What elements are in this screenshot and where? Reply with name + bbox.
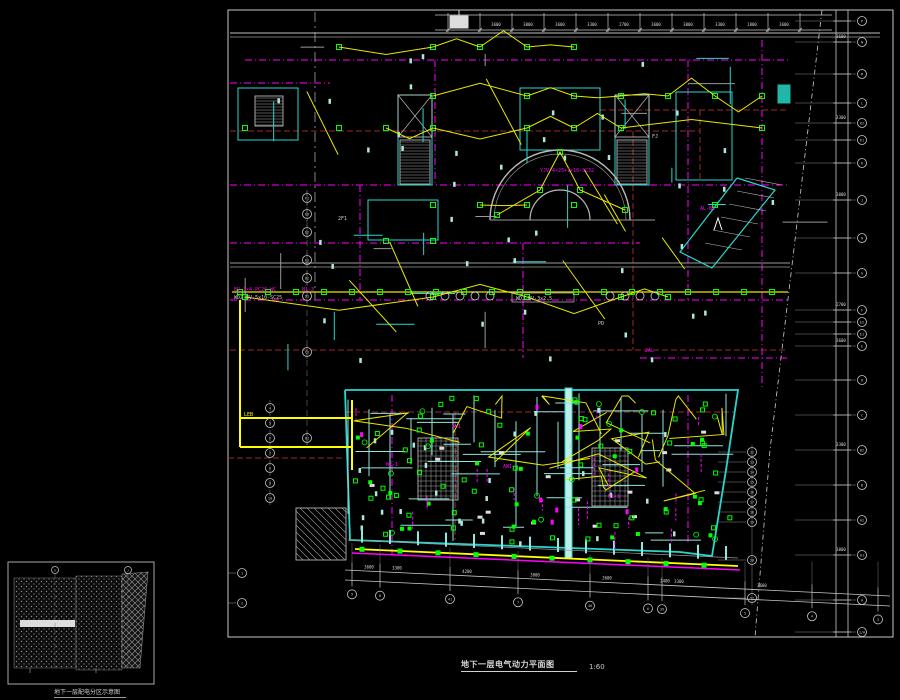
svg-text:E1: E1 — [860, 332, 864, 336]
svg-text:BV-3×4-PC20-WC: BV-3×4-PC20-WC — [234, 287, 276, 293]
grid-bubble: P — [858, 17, 867, 26]
svg-text:A2: A2 — [860, 518, 864, 522]
grid-bubble: E1 — [858, 330, 867, 339]
svg-text:F1: F1 — [305, 196, 309, 200]
svg-text:K: K — [861, 161, 864, 165]
grid-bubble: B — [858, 481, 867, 490]
grid-bubble: H — [858, 234, 867, 243]
svg-text:3300: 3300 — [392, 566, 402, 571]
grid-bubble: 2 — [238, 599, 247, 608]
grid-bubble: K1 — [858, 136, 867, 145]
svg-text:3600: 3600 — [651, 22, 661, 27]
svg-text:P: P — [861, 19, 863, 23]
svg-text:WDZ-BV-3×2.5: WDZ-BV-3×2.5 — [516, 296, 552, 302]
svg-text:10: 10 — [268, 496, 272, 500]
grid-bubble: 1 — [238, 569, 247, 578]
grid-bubble: L — [858, 99, 867, 108]
grid-bubble: 5 — [741, 609, 750, 618]
svg-text:8: 8 — [379, 594, 381, 598]
svg-text:5: 5 — [744, 611, 746, 615]
svg-text:2700: 2700 — [619, 22, 629, 27]
svg-text:3300: 3300 — [459, 22, 469, 27]
svg-text:3000: 3000 — [523, 22, 533, 27]
key-plan-label: 地下一层配电分区示意图 — [54, 687, 126, 698]
svg-text:D2: D2 — [305, 276, 309, 280]
svg-text:A: A — [861, 598, 864, 602]
svg-text:AL1: AL1 — [452, 424, 461, 430]
svg-text:3000: 3000 — [683, 22, 693, 27]
svg-text:AW1: AW1 — [503, 464, 512, 470]
svg-text:N1-1: N1-1 — [608, 494, 620, 500]
grid-bubble: 40 — [586, 601, 595, 610]
grid-bubble: 39 — [658, 605, 667, 614]
grid-bubble: C — [858, 411, 867, 420]
svg-text:E: E — [861, 344, 863, 348]
svg-text:WDZ-BV-5×10-SC25: WDZ-BV-5×10-SC25 — [234, 295, 282, 301]
svg-text:N2-1: N2-1 — [386, 462, 398, 468]
svg-text:4200: 4200 — [462, 569, 472, 574]
fire-line-layer — [228, 110, 788, 540]
svg-text:N1-3: N1-3 — [302, 287, 314, 293]
svg-text:6: 6 — [269, 436, 271, 440]
drawing-scale: 1:60 — [589, 663, 605, 672]
svg-text:F: F — [861, 308, 863, 312]
svg-text:6: 6 — [647, 607, 649, 611]
grid-bubble: F — [858, 306, 867, 315]
grid-bubble: A — [858, 596, 867, 605]
svg-text:1800: 1800 — [747, 22, 757, 27]
svg-text:D: D — [54, 568, 56, 572]
svg-text:B: B — [861, 483, 863, 487]
svg-text:40: 40 — [588, 604, 592, 608]
grid-bubble: 9 — [348, 590, 357, 599]
svg-text:1/A: 1/A — [859, 630, 866, 634]
svg-text:7: 7 — [517, 601, 519, 605]
svg-text:C: C — [861, 413, 863, 417]
svg-text:3600: 3600 — [602, 576, 612, 581]
svg-text:K1: K1 — [860, 138, 864, 142]
grid-bubble: D — [858, 376, 867, 385]
grid-bubble: 8 — [376, 591, 385, 600]
grid-bubble: 41 — [446, 595, 455, 604]
svg-text:2F1: 2F1 — [338, 216, 347, 222]
svg-text:3: 3 — [877, 618, 879, 622]
svg-text:J: J — [861, 198, 863, 202]
grid-bubble: A1 — [858, 551, 867, 560]
svg-text:3600: 3600 — [779, 22, 789, 27]
svg-text:B2: B2 — [860, 448, 864, 452]
hatched-core — [617, 140, 647, 184]
annotation-layer: BV-3×4-PC20-WCWDZ-BV-5×10-SC25N1-3YJV-4×… — [234, 134, 715, 500]
svg-text:9: 9 — [351, 593, 353, 597]
svg-text:3600: 3600 — [364, 564, 374, 569]
svg-text:41: 41 — [448, 597, 452, 601]
grid-bubble: N — [858, 38, 867, 47]
svg-text:E2: E2 — [860, 320, 864, 324]
svg-text:1: 1 — [241, 571, 243, 575]
svg-text:LEB: LEB — [244, 412, 253, 418]
svg-text:3300: 3300 — [836, 442, 846, 447]
svg-text:3300: 3300 — [587, 22, 597, 27]
grid-bubble: A2 — [858, 516, 867, 525]
svg-text:2700: 2700 — [836, 302, 846, 307]
svg-text:A1: A1 — [860, 553, 864, 557]
svg-text:4: 4 — [811, 615, 813, 619]
svg-text:B1: B1 — [305, 436, 309, 440]
svg-text:3600: 3600 — [491, 22, 501, 27]
hatched-core — [400, 140, 430, 184]
circuit-layer — [232, 31, 788, 568]
svg-text:3300: 3300 — [674, 579, 684, 584]
drawing-title: 地下一层电气动力平面图 — [461, 659, 577, 672]
plan-drawing[interactable]: 3300360030003600330027003600300033001800… — [0, 0, 900, 700]
grid-bubble: 7 — [514, 598, 523, 607]
svg-text:G: G — [861, 271, 863, 275]
svg-text:3000: 3000 — [836, 547, 846, 552]
svg-text:2AL: 2AL — [645, 348, 654, 354]
svg-text:AL-B1: AL-B1 — [700, 206, 715, 212]
cad-canvas[interactable]: 3300360030003600330027003600300033001800… — [0, 0, 900, 700]
svg-text:L: L — [861, 101, 863, 105]
hatched-core — [296, 508, 346, 560]
grid-bubble: K2 — [858, 119, 867, 128]
svg-text:N: N — [861, 40, 863, 44]
grid-bubble: 6 — [644, 604, 653, 613]
svg-text:D: D — [861, 378, 863, 382]
svg-text:3300: 3300 — [836, 115, 846, 120]
grid-bubble: B2 — [858, 446, 867, 455]
svg-text:8: 8 — [269, 466, 271, 470]
key-plan-inset: DJ — [8, 562, 154, 684]
svg-text:2: 2 — [241, 601, 243, 605]
svg-text:3000: 3000 — [836, 192, 846, 197]
svg-text:K2: K2 — [860, 121, 864, 125]
svg-text:FJ: FJ — [652, 134, 658, 140]
svg-text:39: 39 — [660, 608, 664, 612]
svg-text:YJV-4×25+1×16-SC32: YJV-4×25+1×16-SC32 — [540, 168, 594, 174]
svg-text:PD: PD — [598, 321, 604, 327]
grid-bubble: G — [858, 269, 867, 278]
grid-bubble: K — [858, 159, 867, 168]
svg-text:M: M — [861, 72, 863, 76]
svg-text:J: J — [127, 568, 129, 572]
grid-bubble: E2 — [858, 318, 867, 327]
grid-bubble: E — [858, 342, 867, 351]
grid-bubble: M — [858, 70, 867, 79]
svg-text:3300: 3300 — [715, 22, 725, 27]
svg-text:3000: 3000 — [530, 572, 540, 577]
svg-text:4: 4 — [269, 406, 271, 410]
grid-bubble: 4 — [808, 612, 817, 621]
svg-text:3600: 3600 — [757, 583, 767, 588]
svg-text:3600: 3600 — [836, 34, 846, 39]
svg-text:3600: 3600 — [836, 338, 846, 343]
grid-bubble: J — [858, 196, 867, 205]
grid-bubble: 1/A — [858, 628, 867, 637]
svg-text:H: H — [861, 236, 863, 240]
grid-bubble: 3 — [874, 615, 883, 624]
svg-text:3600: 3600 — [555, 22, 565, 27]
drawing-title-block: 地下一层电气动力平面图 1:60 — [461, 659, 605, 672]
